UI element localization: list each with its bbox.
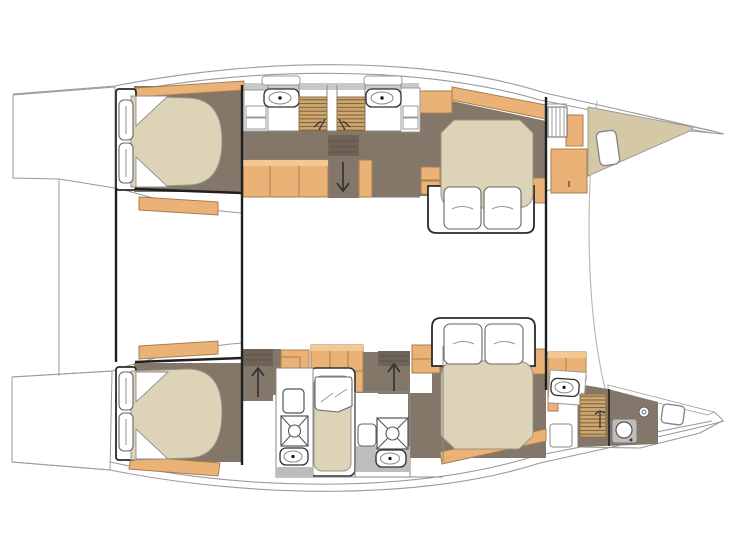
upper-bow-locker-a: [566, 115, 583, 146]
catamaran-floor-plan: [0, 0, 747, 560]
stern-platforms: [12, 87, 115, 470]
lower-fwd-mattress: [441, 361, 533, 449]
bow-head-toilet: [612, 419, 637, 443]
lower-aft-sink: [280, 448, 308, 465]
stern-platform-lower: [12, 371, 112, 470]
upper-cabinet-strip: [359, 160, 372, 197]
lower-aft-stair-header: [243, 349, 273, 366]
lower-aft-head-fixture: [283, 389, 304, 413]
bridge-plank-upper: [139, 197, 218, 215]
bow-head-door: [550, 424, 572, 447]
bow-head-shower-floor: [580, 394, 606, 437]
upper-wardrobe-floor: [372, 131, 420, 197]
single-berth-pillow: [315, 377, 352, 412]
stern-platform-upper: [13, 87, 115, 188]
bridge-plank-lower: [139, 341, 218, 359]
lower-mid-head-fixture: [358, 424, 376, 446]
upper-shower-floor-port: [299, 97, 327, 131]
upper-fwd-locker-b: [421, 167, 440, 180]
lower-mid-shower-tray: [377, 418, 408, 449]
lower-bow-hatch: [661, 404, 685, 426]
upper-shower-floor-stbd: [337, 97, 365, 131]
catamaran-floor-plan-page: [0, 0, 747, 560]
upper-stbd-sink: [366, 89, 401, 107]
lower-mid-sink: [376, 450, 406, 467]
foredeck-ladder: [546, 104, 567, 137]
upper-bow-hatch: [596, 130, 621, 166]
bow-head-porthole: [639, 407, 649, 417]
upper-fwd-locker-a: [420, 91, 452, 113]
lower-aft-head-mat: [277, 467, 313, 476]
upper-port-sink: [264, 89, 299, 107]
deck-hatches: [596, 130, 685, 426]
upper-stair-header: [328, 135, 359, 156]
lower-aft-shower-tray: [281, 416, 308, 446]
